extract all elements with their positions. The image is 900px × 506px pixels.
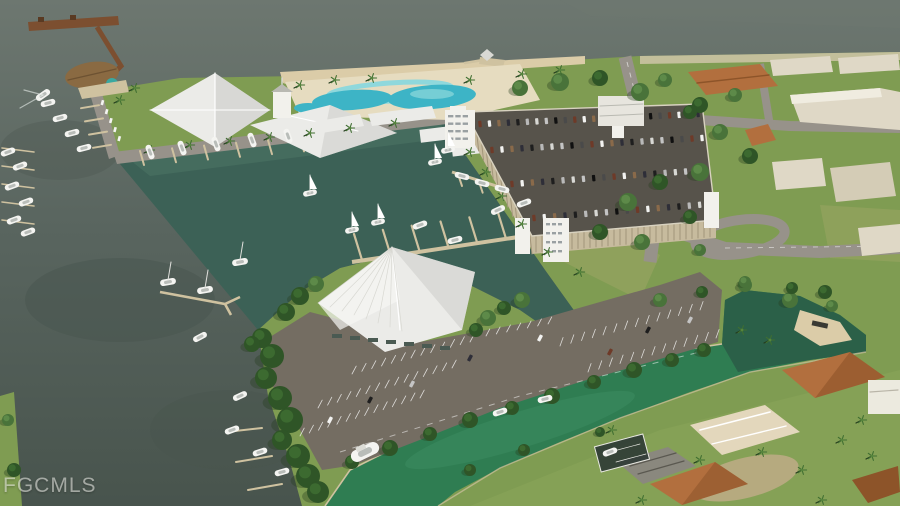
rooftop-car (507, 119, 511, 126)
rooftop-car (571, 176, 575, 183)
window (558, 241, 562, 243)
tree-highlight (741, 277, 747, 283)
tree-highlight (507, 402, 514, 409)
rooftop-car (667, 204, 671, 211)
warehouse (858, 224, 900, 256)
tree-highlight (698, 287, 704, 293)
rooftop-car (478, 121, 482, 128)
tree-highlight (553, 75, 562, 84)
mls-watermark: FGCMLS (3, 474, 97, 498)
rooftop-car (573, 211, 577, 218)
tree-highlight (384, 442, 392, 450)
rooftop-car (582, 116, 586, 123)
rooftop-car (573, 116, 577, 123)
palm-center (769, 339, 772, 342)
window (448, 115, 453, 117)
rooftop-car (690, 135, 694, 142)
palm-center (371, 77, 374, 80)
tree-highlight (667, 354, 674, 361)
pavilion-opening (386, 340, 396, 344)
rooftop-car (630, 139, 634, 146)
tree-highlight (730, 89, 737, 96)
window (448, 130, 453, 132)
rooftop-car (670, 136, 674, 143)
palm-center (485, 171, 488, 174)
rooftop-car (658, 112, 662, 119)
palm-center (229, 140, 232, 143)
rooftop-car (600, 140, 604, 147)
window (558, 232, 562, 234)
rooftop-car (592, 115, 596, 122)
palm-center (119, 99, 122, 102)
window (448, 123, 453, 125)
palm-center (761, 451, 764, 454)
rooftop-car (541, 178, 545, 185)
rooftop-car (535, 118, 539, 125)
palm-center (547, 251, 550, 254)
water-shadow (25, 258, 215, 342)
rooftop-car (570, 142, 574, 149)
aerial-marina-rendering: FGCMLS (0, 0, 900, 506)
rooftop-car (488, 120, 492, 127)
window (552, 223, 556, 225)
tree-highlight (275, 432, 285, 442)
tree-highlight (594, 72, 602, 80)
rooftop-car (530, 179, 534, 186)
palm-center (349, 127, 352, 130)
rooftop-car (520, 180, 524, 187)
tree-highlight (628, 364, 636, 372)
rooftop-car (584, 211, 588, 218)
rooftop-car (530, 144, 534, 151)
rooftop-car (700, 135, 704, 142)
pier-shelter (38, 17, 44, 22)
tree-highlight (279, 305, 288, 314)
tree-highlight (696, 245, 702, 251)
tree-highlight (271, 388, 283, 400)
palm-center (801, 469, 804, 472)
rooftop-car (561, 177, 565, 184)
palm-center (501, 195, 504, 198)
rooftop-car (532, 215, 536, 222)
palm-center (861, 419, 864, 422)
palm-center (469, 79, 472, 82)
tree-highlight (685, 211, 692, 218)
rooftop-car (594, 210, 598, 217)
tree-highlight (299, 466, 311, 478)
pier-shelter (70, 15, 76, 20)
rooftop-car (525, 118, 529, 125)
tree-highlight (714, 126, 722, 134)
palm-center (394, 122, 397, 125)
tree-highlight (636, 236, 644, 244)
rooftop-car (620, 139, 624, 146)
tree-highlight (594, 226, 602, 234)
tree-highlight (514, 82, 522, 90)
white-house (868, 380, 900, 414)
tree-highlight (425, 428, 432, 435)
tree-highlight (621, 195, 630, 204)
rooftop-car (602, 174, 606, 181)
tree-highlight (310, 278, 318, 286)
rooftop-car (643, 171, 647, 178)
palm-center (871, 455, 874, 458)
tree-highlight (784, 294, 792, 302)
tree-highlight (654, 176, 662, 184)
window (558, 250, 562, 252)
warehouse (772, 158, 826, 190)
rooftop-car (633, 172, 637, 179)
palm-center (699, 459, 702, 462)
rooftop-car (656, 205, 660, 212)
warehouse (830, 162, 896, 202)
palm-center (821, 499, 824, 502)
stair-tower (704, 192, 719, 228)
rooftop-car (590, 141, 594, 148)
tree-highlight (280, 410, 293, 423)
tree-highlight (499, 302, 506, 309)
rooftop-car (640, 138, 644, 145)
tree-highlight (694, 99, 702, 107)
rooftop-car (673, 169, 677, 176)
window (463, 115, 468, 117)
palm-center (521, 73, 524, 76)
tree-highlight (246, 338, 254, 346)
palm-center (841, 439, 844, 442)
palm-center (134, 87, 137, 90)
window (558, 223, 562, 225)
palm-center (189, 144, 192, 147)
window (546, 223, 550, 225)
palm-center (309, 132, 312, 135)
tree-highlight (258, 369, 269, 380)
rooftop-car (677, 203, 681, 210)
rooftop-car (540, 144, 544, 151)
rooftop-car (650, 138, 654, 145)
window (463, 123, 468, 125)
tree-highlight (828, 301, 834, 307)
tree-highlight (289, 446, 301, 458)
tree-highlight (820, 286, 827, 293)
window (455, 123, 460, 125)
window (463, 130, 468, 132)
tree-highlight (482, 312, 490, 320)
pavilion-opening (440, 346, 450, 350)
window (455, 130, 460, 132)
rooftop-car (510, 146, 514, 153)
tree-highlight (263, 346, 275, 358)
rooftop-car (510, 181, 514, 188)
rooftop-car (497, 120, 501, 127)
rooftop-car (605, 209, 609, 216)
window (463, 138, 468, 140)
window (455, 138, 460, 140)
palm-center (559, 69, 562, 72)
tree-highlight (596, 428, 601, 433)
tree-highlight (4, 415, 10, 421)
tree-highlight (788, 283, 794, 289)
pavilion-opening (404, 342, 414, 346)
pool-shallow (410, 89, 454, 99)
window (546, 232, 550, 234)
pavilion-opening (350, 336, 360, 340)
scene-canvas (0, 0, 900, 506)
palm-center (611, 429, 614, 432)
clock-tower (273, 92, 291, 118)
window (455, 115, 460, 117)
rooftop-car (560, 143, 564, 150)
tree-highlight (685, 106, 692, 113)
tree-highlight (693, 165, 702, 174)
tree-highlight (744, 150, 752, 158)
palm-center (469, 151, 472, 154)
rooftop-car (680, 136, 684, 143)
tree-highlight (9, 464, 16, 471)
rooftop-car (520, 145, 524, 152)
rooftop-car (622, 173, 626, 180)
tree-highlight (293, 289, 302, 298)
rooftop-car (687, 202, 691, 209)
rooftop-car (544, 118, 548, 125)
rooftop-car (582, 175, 586, 182)
palm-center (521, 223, 524, 226)
tree-highlight (699, 344, 706, 351)
tree-highlight (466, 465, 472, 471)
rooftop-car (660, 137, 664, 144)
pavilion-opening (422, 344, 432, 348)
tree-highlight (520, 445, 526, 451)
window (546, 241, 550, 243)
rooftop-car (500, 146, 504, 153)
palm-center (269, 136, 272, 139)
palm-center (641, 499, 644, 502)
pavilion-opening (368, 338, 378, 342)
rooftop-car (563, 212, 567, 219)
tree-highlight (655, 294, 662, 301)
pavilion-opening (332, 334, 342, 338)
tree-highlight (310, 483, 321, 494)
palm-center (579, 271, 582, 274)
rooftop-car (592, 175, 596, 182)
window (552, 232, 556, 234)
rooftop-car (490, 147, 494, 154)
rooftop-car (516, 119, 520, 126)
rooftop-car (563, 117, 567, 124)
rooftop-car (551, 178, 555, 185)
rooftop-car (668, 112, 672, 119)
rooftop-car (649, 113, 653, 120)
tree-highlight (464, 414, 472, 422)
tree-highlight (633, 85, 642, 94)
rooftop-car (636, 206, 640, 213)
tree-highlight (516, 294, 524, 302)
palm-center (299, 84, 302, 87)
tree-highlight (589, 376, 596, 383)
tree-highlight (471, 324, 478, 331)
rooftop-car (550, 143, 554, 150)
rooftop-car (554, 117, 558, 124)
tree-highlight (660, 74, 667, 81)
rooftop-car (612, 173, 616, 180)
window (552, 241, 556, 243)
rooftop-car (610, 140, 614, 147)
rooftop-car (684, 168, 688, 175)
palm-center (741, 329, 744, 332)
rooftop-car (646, 206, 650, 213)
palm-center (334, 79, 337, 82)
rooftop-car (580, 142, 584, 149)
rooftop-car (698, 201, 702, 208)
